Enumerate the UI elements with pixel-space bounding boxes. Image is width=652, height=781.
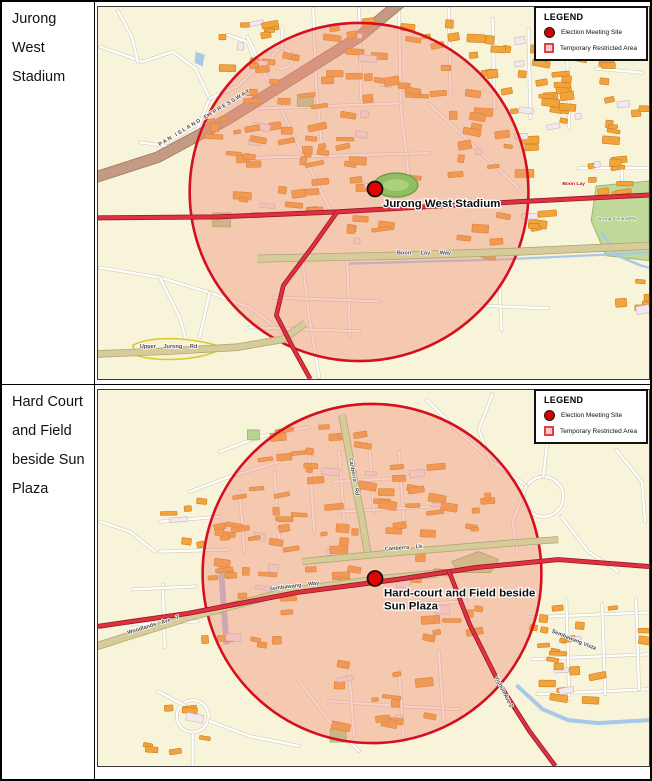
map-canvas-sun-plaza: Woodlands Ave 7 Sembawang Way Canberra R… <box>97 389 650 767</box>
legend-label: Election Meeting Site <box>561 29 622 36</box>
legend-item-restricted-area: Temporary Restricted Area <box>544 426 642 436</box>
legend-label: Temporary Restricted Area <box>560 45 637 52</box>
legend-box: LEGEND Election Meeting Site Temporary R… <box>534 389 648 444</box>
site-name-cell: Jurong West Stadium <box>2 2 95 384</box>
site-label-line1: Hard-court and Field beside <box>384 587 535 599</box>
legend-label: Election Meeting Site <box>561 412 622 419</box>
site-name-text: Hard Court and Field beside Sun Plaza <box>12 388 90 504</box>
legend-item-restricted-area: Temporary Restricted Area <box>544 43 642 53</box>
restricted-area-icon <box>544 43 554 53</box>
meeting-site-icon <box>544 27 555 38</box>
legend-box: LEGEND Election Meeting Site Temporary R… <box>534 6 648 61</box>
legend-item-meeting-site: Election Meeting Site <box>544 27 642 38</box>
site-name-cell: Hard Court and Field beside Sun Plaza <box>2 385 95 779</box>
map-cell: PAN ISLAND EXPRESSWAY Boon Lay Way Upper… <box>95 2 650 384</box>
restricted-area-icon <box>544 426 554 436</box>
table-row-sun-plaza: Hard Court and Field beside Sun Plaza Wo… <box>2 385 650 779</box>
stadium-infield <box>383 179 409 191</box>
site-label-line2: Sun Plaza <box>384 600 439 612</box>
temporary-restricted-area-circle <box>190 23 529 361</box>
meeting-site-icon <box>544 410 555 421</box>
table-row-jurong-west: Jurong West Stadium PAN ISLAND EXPRESSWA… <box>2 2 650 385</box>
site-label: Jurong West Stadium <box>383 198 500 210</box>
legend-label: Temporary Restricted Area <box>560 428 637 435</box>
map-canvas-jurong-west: PAN ISLAND EXPRESSWAY Boon Lay Way Upper… <box>97 6 650 380</box>
meeting-site-marker <box>368 182 383 197</box>
road-label-boon-lay-way: Boon Lay Way <box>397 251 452 257</box>
map-sun-plaza: Woodlands Ave 7 Sembawang Way Canberra R… <box>97 389 648 767</box>
map-jurong-west-stadium: PAN ISLAND EXPRESSWAY Boon Lay Way Upper… <box>97 6 648 380</box>
legend-title: LEGEND <box>544 395 642 405</box>
legend-item-meeting-site: Election Meeting Site <box>544 410 642 421</box>
area-label-jurong-central-pk: Jurong Central Pk <box>596 216 636 222</box>
map-cell: Woodlands Ave 7 Sembawang Way Canberra R… <box>95 385 650 779</box>
legend-title: LEGEND <box>544 12 642 22</box>
station-label-boon-lay: Boon Lay <box>562 181 585 187</box>
road-label-upper-jurong-rd: Upper Jurong Rd <box>140 344 198 350</box>
document-table: Jurong West Stadium PAN ISLAND EXPRESSWA… <box>0 0 652 781</box>
site-name-text: Jurong West Stadium <box>12 5 90 92</box>
meeting-site-marker <box>368 571 383 586</box>
